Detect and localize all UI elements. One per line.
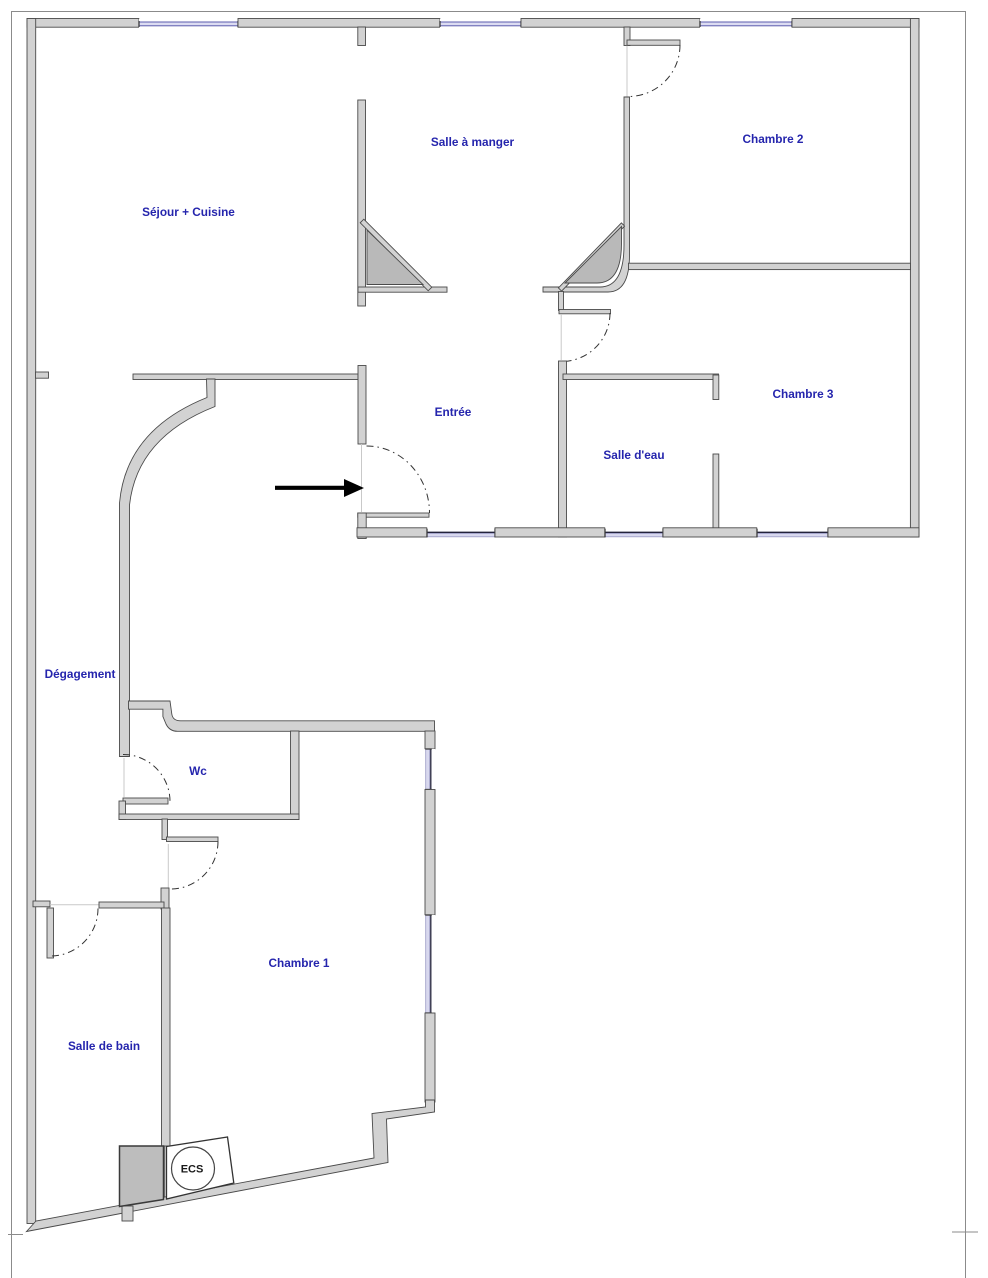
svg-text:Séjour + Cuisine: Séjour + Cuisine	[142, 205, 235, 219]
svg-text:Chambre 3: Chambre 3	[773, 387, 834, 401]
svg-text:Salle à manger: Salle à manger	[431, 135, 515, 149]
svg-text:Salle de bain: Salle de bain	[68, 1039, 140, 1053]
svg-text:Chambre 2: Chambre 2	[743, 132, 804, 146]
svg-text:Chambre 1: Chambre 1	[269, 956, 330, 970]
svg-text:Salle d'eau: Salle d'eau	[603, 448, 664, 462]
svg-text:Entrée: Entrée	[435, 405, 472, 419]
svg-text:Wc: Wc	[189, 764, 207, 778]
svg-text:Dégagement: Dégagement	[45, 667, 116, 681]
svg-text:ECS: ECS	[181, 1164, 204, 1176]
